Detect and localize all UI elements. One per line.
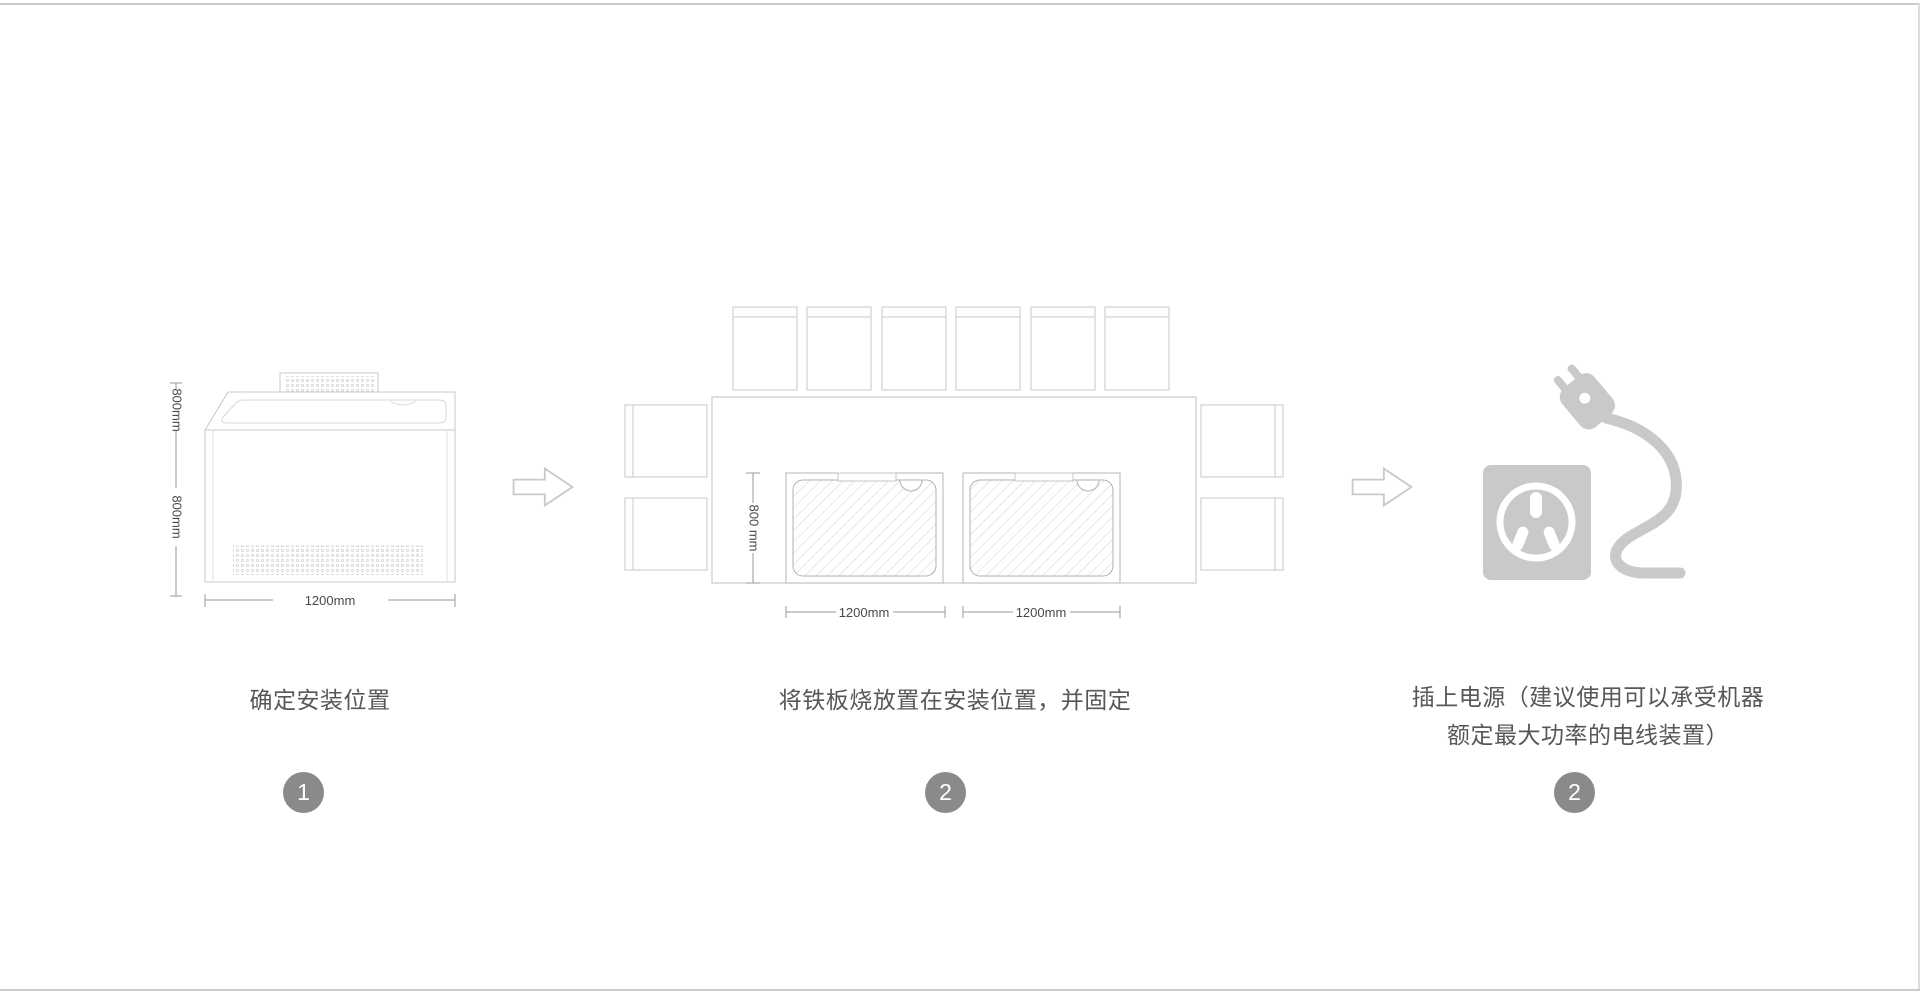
step3-caption: 插上电源（建议使用可以承受机器 额定最大功率的电线装置） [1408,678,1768,754]
teppanyaki-front-view-drawing: 800mm 800mm 1200mm [145,368,465,613]
step3-caption-line2: 额定最大功率的电线装置） [1447,722,1729,748]
counter-table [712,397,1196,583]
right-arrow-icon [1348,464,1416,510]
grill-plate-left [786,473,943,583]
chair [1105,307,1169,390]
chair [807,307,871,390]
bottom-divider [0,989,1920,991]
right-chair-column [1201,405,1283,570]
dimension-label-right-width: 1200mm [1016,605,1067,620]
chair [1201,405,1283,477]
top-divider [0,3,1920,5]
chair [625,498,707,570]
chair [1201,498,1283,570]
front-vent-grille [233,545,423,575]
grill-plate-right [963,473,1120,583]
step-number-badge: 1 [283,772,324,813]
chair [733,307,797,390]
chair [882,307,946,390]
dimension-label-body-height: 800mm [170,495,185,538]
machine-top-surface [205,392,455,430]
dimension-label-depth: 800 mm [747,505,762,552]
chair [1031,307,1095,390]
dimension-label-top-height: 800mm [170,388,185,431]
machine-front-face [205,430,455,582]
step3-caption-line1: 插上电源（建议使用可以承受机器 [1412,684,1765,710]
chair [956,307,1020,390]
right-arrow-icon [509,464,577,510]
dimension-label-left-width: 1200mm [839,605,890,620]
top-chair-row [733,307,1169,390]
step-number-badge: 2 [925,772,966,813]
power-plug-socket-icon [1480,360,1720,600]
socket [1483,465,1591,580]
chair [625,405,707,477]
step2-caption: 将铁板烧放置在安装位置，并固定 [605,681,1305,719]
power-cord [1606,418,1680,573]
step-number-badge: 2 [1554,772,1595,813]
installation-top-view-drawing: 800 mm 1200mm 1200mm [600,305,1300,625]
left-chair-column [625,405,707,570]
step1-caption: 确定安装位置 [160,681,480,719]
dimension-label-width: 1200mm [305,593,356,608]
